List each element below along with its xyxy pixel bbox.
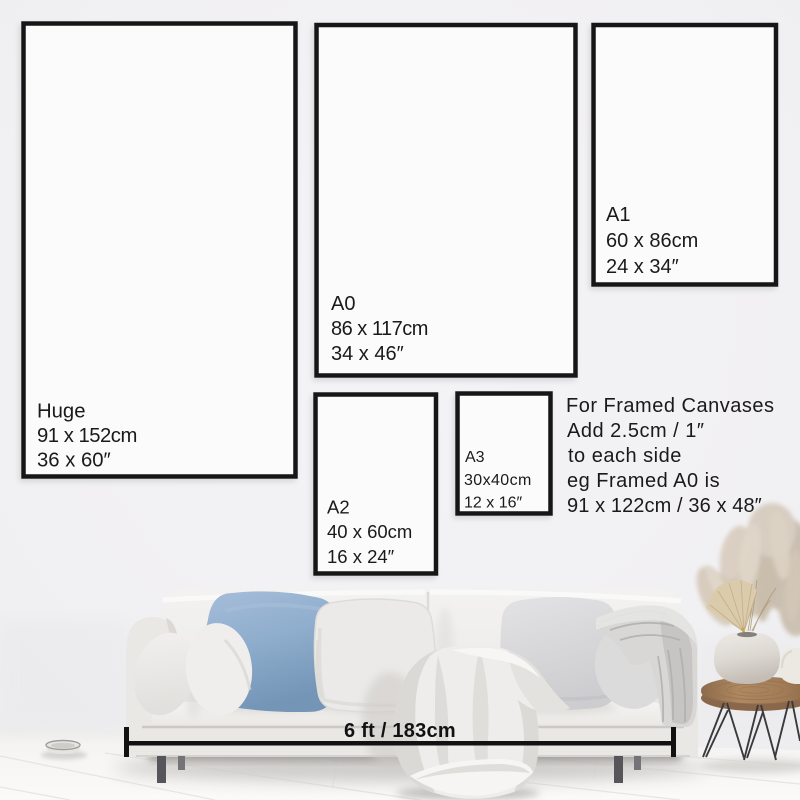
svg-text:A0: A0 (331, 293, 355, 315)
svg-text:A3: A3 (465, 449, 485, 466)
svg-text:6 ft / 183cm: 6 ft / 183cm (344, 720, 456, 742)
svg-text:86 x 117cm: 86 x 117cm (331, 318, 428, 340)
svg-text:34 x 46″: 34 x 46″ (331, 343, 404, 365)
svg-text:24 x 34″: 24 x 34″ (606, 256, 679, 278)
svg-text:91 x 122cm / 36 x 48″: 91 x 122cm / 36 x 48″ (567, 495, 762, 517)
svg-text:40 x 60cm: 40 x 60cm (327, 521, 412, 542)
svg-text:For Framed Canvases: For Framed Canvases (566, 395, 774, 417)
svg-text:30x40cm: 30x40cm (464, 472, 532, 489)
svg-text:eg Framed A0 is: eg Framed A0 is (567, 470, 720, 492)
svg-text:16 x 24″: 16 x 24″ (327, 546, 395, 567)
svg-text:A2: A2 (327, 497, 350, 518)
svg-text:A1: A1 (606, 204, 630, 226)
svg-text:to each side: to each side (568, 445, 682, 467)
svg-text:Add 2.5cm / 1″: Add 2.5cm / 1″ (567, 420, 704, 442)
svg-text:91 x 152cm: 91 x 152cm (37, 425, 137, 447)
svg-text:Huge: Huge (37, 401, 86, 423)
svg-text:60 x 86cm: 60 x 86cm (606, 230, 698, 252)
svg-text:36 x 60″: 36 x 60″ (37, 450, 111, 472)
svg-text:12 x 16″: 12 x 16″ (464, 495, 522, 512)
